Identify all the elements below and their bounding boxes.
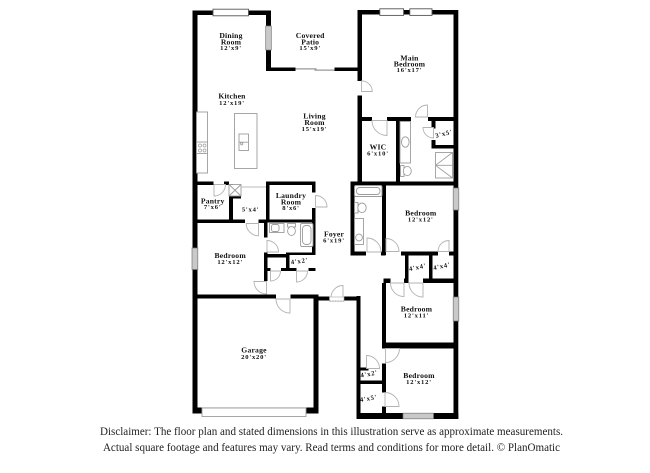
svg-text:12'x9': 12'x9' (220, 45, 242, 52)
svg-text:7'x6': 7'x6' (204, 204, 222, 211)
svg-text:12'x12': 12'x12' (408, 217, 434, 224)
svg-text:12'x12': 12'x12' (217, 259, 243, 266)
svg-text:8'x6': 8'x6' (282, 205, 300, 212)
svg-text:12'x11': 12'x11' (404, 313, 429, 320)
svg-text:Disclaimer: The floor plan and: Disclaimer: The floor plan and stated di… (100, 426, 563, 438)
svg-text:6'x10': 6'x10' (367, 151, 389, 158)
svg-text:20'x20': 20'x20' (241, 354, 267, 361)
svg-text:Actual square footage and feat: Actual square footage and features may v… (103, 442, 560, 454)
svg-text:12'x19': 12'x19' (219, 100, 245, 107)
svg-text:15'x9': 15'x9' (299, 45, 321, 52)
svg-text:12'x12': 12'x12' (406, 379, 432, 386)
svg-text:16'x17': 16'x17' (397, 67, 423, 74)
svg-text:5'x4': 5'x4' (242, 206, 260, 213)
svg-text:15'x19': 15'x19' (302, 126, 328, 133)
svg-text:6'x19': 6'x19' (323, 238, 345, 245)
